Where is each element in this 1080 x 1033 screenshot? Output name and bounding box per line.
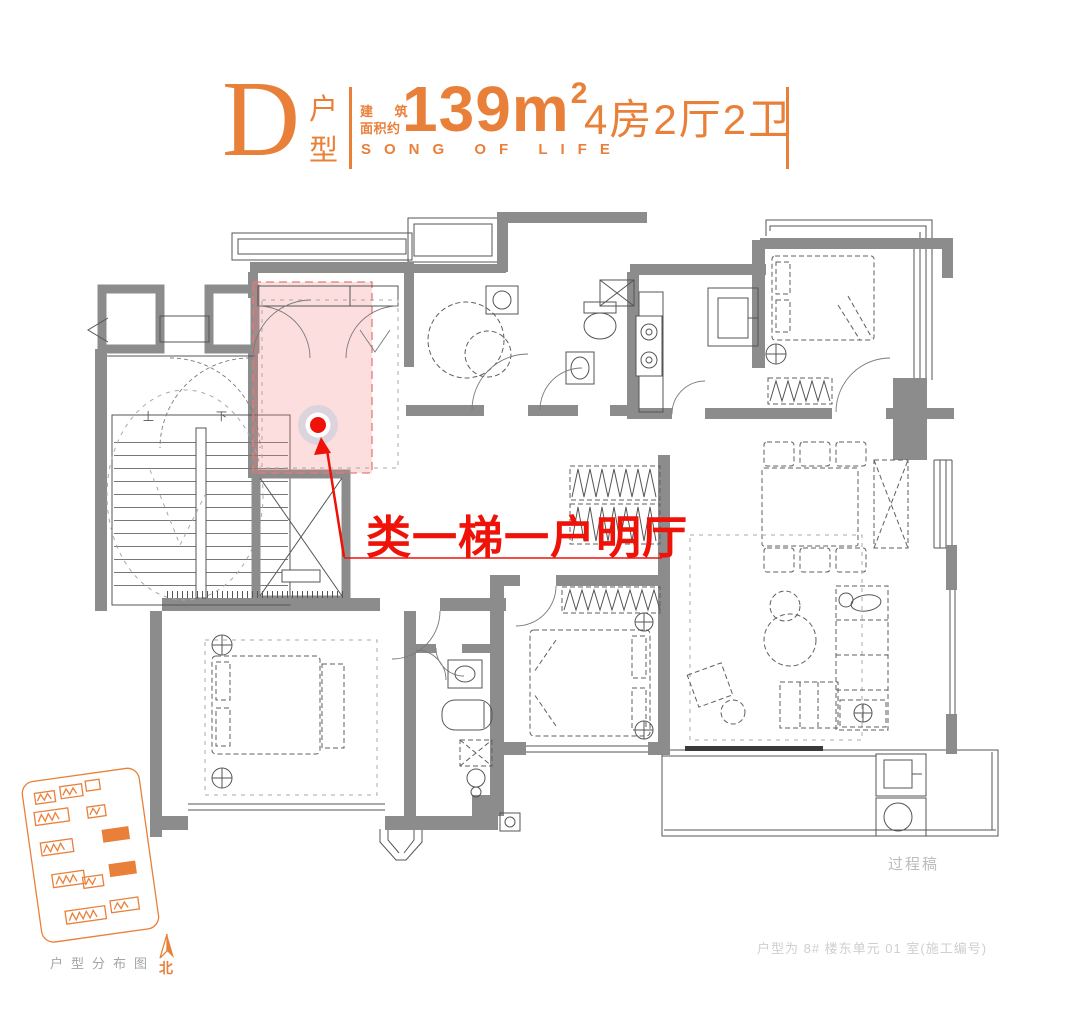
sliding-door-track [685,746,823,751]
stairs-up-label: 上 [143,410,154,423]
desk [486,286,518,314]
laundry-sink [884,760,912,788]
site-building-highlighted [109,861,136,877]
counter-right [708,288,758,346]
highlight-zone [253,282,372,473]
living-room [687,535,888,740]
canopy-outline [205,640,377,795]
tv-bench [780,682,838,728]
north-label: 北 [159,958,173,978]
marker-dot [310,417,326,433]
watermark-text: 过程稿 [888,853,939,874]
north-arrow-icon [160,934,174,958]
site-building-highlighted [102,827,129,843]
bedroom-top-right [766,256,890,412]
shaft-boxes [88,289,255,356]
stairs-down-label: 下 [216,411,227,423]
armchair [687,663,732,707]
chair [800,442,830,466]
bathroom-top [540,280,634,410]
unit-footnote: 户型为 8# 楼东单元 01 室(施工编号) [757,938,987,957]
chair [800,548,830,572]
bed-bench [322,664,344,748]
chair [764,548,794,572]
toilet [584,313,616,339]
floorplan-page: D 户 型 建 筑 面积约 139m2 4房2厅2卫 SONG OF LIFE [0,0,1080,1033]
bed [212,656,320,754]
kitchen [636,288,758,414]
site-buildings [31,776,142,927]
chair [836,442,866,466]
stove [636,316,662,376]
wall-insulation [166,591,346,598]
chair [836,548,866,572]
annotation-text: 类一梯一户明厅 [366,501,688,566]
kitchen-sink [718,298,748,338]
dining-area [762,442,908,572]
bottom-ledge [380,829,422,860]
side-stool [721,700,745,724]
bedroom-bottom-middle [516,586,653,739]
bed [530,630,650,736]
sitemap-label: 户型分布图 [50,953,155,972]
chair [764,442,794,466]
dining-table [762,468,858,546]
coffee-table [764,614,816,666]
site-map [21,767,160,944]
study-room [428,286,528,410]
bed [772,256,874,340]
